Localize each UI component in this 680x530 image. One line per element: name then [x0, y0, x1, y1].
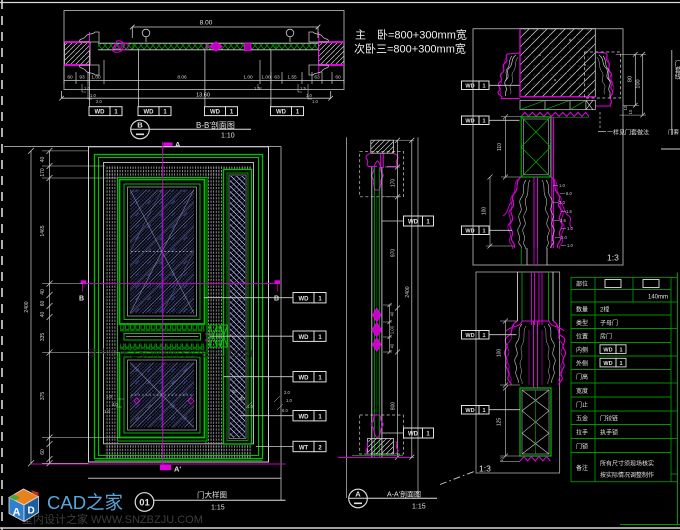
svg-text:WD: WD — [603, 348, 612, 354]
svg-text:WD: WD — [299, 376, 310, 382]
svg-text:内侧: 内侧 — [576, 346, 588, 354]
svg-text:WD: WD — [276, 110, 287, 116]
svg-text:WD: WD — [465, 119, 474, 125]
svg-text:1.0: 1.0 — [104, 409, 110, 414]
svg-text:A: A — [355, 490, 361, 499]
svg-text:80: 80 — [628, 76, 634, 82]
svg-text:40: 40 — [40, 157, 46, 163]
svg-text:1: 1 — [482, 84, 485, 90]
svg-text:1.0: 1.0 — [247, 404, 253, 409]
svg-text:部位: 部位 — [576, 280, 588, 288]
svg-text:10: 10 — [623, 105, 628, 110]
svg-text:WD: WD — [408, 432, 419, 438]
svg-text:01: 01 — [139, 498, 150, 509]
svg-text:WD: WD — [465, 408, 474, 414]
svg-text:60: 60 — [40, 301, 46, 307]
svg-text:1:3: 1:3 — [607, 253, 619, 263]
svg-text:1.0: 1.0 — [312, 99, 318, 104]
svg-text:1.0: 1.0 — [559, 183, 565, 188]
svg-text:1: 1 — [482, 408, 485, 414]
svg-text:100: 100 — [482, 207, 488, 216]
svg-text:6.0: 6.0 — [282, 408, 288, 413]
svg-text:WD: WD — [144, 110, 155, 116]
svg-text:1.0: 1.0 — [567, 243, 573, 248]
svg-text:门大样图: 门大样图 — [197, 490, 227, 500]
svg-text:1:3: 1:3 — [479, 464, 491, 474]
svg-text:门套线: 门套线 — [673, 59, 680, 80]
svg-text:1.5: 1.5 — [566, 209, 572, 214]
svg-text:10: 10 — [499, 457, 504, 462]
svg-text:子母门: 子母门 — [600, 319, 618, 327]
svg-text:40: 40 — [40, 312, 46, 318]
svg-text:13.60: 13.60 — [196, 93, 210, 99]
svg-text:D: D — [28, 506, 35, 517]
svg-text:CAD之家: CAD之家 — [47, 492, 123, 513]
svg-text:4.0: 4.0 — [112, 402, 118, 407]
svg-text:2.0: 2.0 — [561, 235, 567, 240]
svg-text:100: 100 — [636, 79, 642, 88]
svg-text:1.5: 1.5 — [254, 86, 260, 91]
svg-text:B: B — [137, 121, 143, 130]
svg-text:1.0: 1.0 — [306, 93, 312, 98]
svg-text:A-A'剖面图: A-A'剖面图 — [387, 490, 421, 499]
svg-text:WD: WD — [299, 415, 310, 421]
svg-text:1:15: 1:15 — [211, 505, 225, 512]
svg-text:970: 970 — [391, 249, 397, 258]
svg-text:宽度: 宽度 — [576, 387, 588, 395]
svg-text:1.0: 1.0 — [567, 226, 573, 231]
svg-text:1465: 1465 — [40, 225, 46, 236]
svg-text:WD: WD — [299, 297, 310, 303]
svg-text:1.00: 1.00 — [390, 325, 395, 334]
svg-text:B-B'剖面图: B-B'剖面图 — [196, 120, 235, 130]
svg-text:2.0: 2.0 — [284, 390, 290, 395]
svg-text:1: 1 — [482, 333, 485, 339]
svg-text:140mm: 140mm — [648, 295, 668, 301]
svg-text:WD: WD — [603, 361, 612, 367]
svg-text:A: A — [13, 507, 21, 519]
svg-text:3.5: 3.5 — [560, 218, 566, 223]
svg-text:2400: 2400 — [405, 286, 411, 297]
svg-text:WD: WD — [465, 229, 474, 235]
svg-text:1.55: 1.55 — [287, 75, 297, 81]
svg-text:WD: WD — [210, 110, 221, 116]
svg-text:1:15: 1:15 — [412, 504, 426, 511]
svg-text:40: 40 — [390, 343, 395, 348]
svg-text:100: 100 — [497, 349, 503, 358]
svg-text:室内设计之家 WWW.SNZBZJU.COM: 室内设计之家 WWW.SNZBZJU.COM — [88, 347, 252, 360]
svg-text:40: 40 — [40, 289, 46, 295]
svg-text:WD: WD — [465, 84, 474, 90]
svg-text:63: 63 — [274, 75, 280, 81]
svg-text:800: 800 — [391, 402, 397, 411]
svg-text:WD: WD — [408, 220, 419, 226]
svg-text:拉手: 拉手 — [576, 429, 588, 437]
svg-text:A': A' — [174, 465, 181, 474]
svg-text:335: 335 — [40, 333, 46, 342]
svg-text:125: 125 — [497, 418, 503, 427]
svg-text:门高: 门高 — [576, 373, 588, 381]
svg-text:外侧: 外侧 — [576, 360, 588, 368]
svg-text:8.00: 8.00 — [200, 20, 213, 27]
svg-text:按实际情况调整制作: 按实际情况调整制作 — [600, 471, 654, 479]
svg-text:1.00: 1.00 — [91, 75, 101, 81]
svg-text:门套: 门套 — [668, 128, 680, 136]
svg-text:WD: WD — [465, 333, 474, 339]
svg-text:备注: 备注 — [576, 464, 588, 472]
svg-text:170: 170 — [391, 179, 397, 188]
svg-text:1.0: 1.0 — [106, 394, 112, 399]
svg-text:B: B — [79, 296, 84, 303]
svg-text:A: A — [175, 140, 181, 149]
svg-text:2樘: 2樘 — [600, 306, 609, 314]
svg-text:WD: WD — [299, 335, 310, 341]
svg-text:次卧三=800+300mm宽: 次卧三=800+300mm宽 — [354, 42, 466, 56]
svg-text:375: 375 — [40, 392, 46, 401]
svg-text:8.06: 8.06 — [177, 75, 187, 81]
svg-text:门锁: 门锁 — [576, 443, 588, 451]
svg-text:主 卧=800+300mm宽: 主 卧=800+300mm宽 — [355, 28, 467, 42]
svg-text:门铰链: 门铰链 — [600, 415, 618, 423]
svg-text:WT: WT — [299, 445, 309, 451]
svg-text:10: 10 — [628, 109, 633, 114]
svg-text:1: 1 — [482, 229, 485, 235]
svg-text:40: 40 — [240, 396, 245, 401]
svg-text:1.00: 1.00 — [243, 75, 253, 81]
svg-text:63: 63 — [314, 75, 320, 81]
svg-text:170: 170 — [40, 168, 46, 177]
svg-text:60: 60 — [232, 389, 237, 394]
svg-text:WD: WD — [95, 110, 106, 116]
svg-text:五金: 五金 — [576, 415, 588, 423]
svg-text:1: 1 — [619, 348, 622, 354]
svg-text:所有尺寸须现场核实: 所有尺寸须现场核实 — [600, 460, 654, 468]
svg-text:40: 40 — [390, 311, 395, 316]
svg-text:1.00: 1.00 — [261, 75, 271, 81]
svg-text:执手锁: 执手锁 — [600, 429, 618, 437]
svg-text:位置: 位置 — [576, 333, 588, 341]
svg-text:类型: 类型 — [576, 319, 588, 327]
svg-text:1:10: 1:10 — [221, 133, 235, 140]
svg-text:一样见门套做法: 一样见门套做法 — [607, 129, 649, 137]
svg-text:93: 93 — [79, 75, 85, 81]
svg-text:1.0: 1.0 — [286, 398, 292, 403]
svg-text:60: 60 — [335, 75, 341, 81]
svg-text:60: 60 — [40, 449, 46, 455]
svg-text:1.0: 1.0 — [90, 93, 96, 98]
svg-text:1: 1 — [482, 119, 485, 125]
svg-text:房门: 房门 — [600, 333, 612, 341]
svg-text:110: 110 — [497, 143, 503, 151]
svg-text:60: 60 — [67, 75, 73, 81]
svg-text:2.0: 2.0 — [559, 200, 565, 205]
svg-text:6.0: 6.0 — [566, 191, 572, 196]
svg-text:数量: 数量 — [576, 306, 588, 314]
svg-text:2.0: 2.0 — [96, 99, 102, 104]
svg-text:B: B — [274, 296, 279, 303]
svg-text:室内设计之家 WWW.SNZBZJU.COM: 室内设计之家 WWW.SNZBZJU.COM — [22, 512, 203, 526]
svg-text:1.5: 1.5 — [300, 86, 306, 91]
svg-text:2400: 2400 — [24, 301, 30, 312]
svg-text:1: 1 — [619, 361, 622, 367]
svg-text:门止: 门止 — [576, 401, 588, 409]
